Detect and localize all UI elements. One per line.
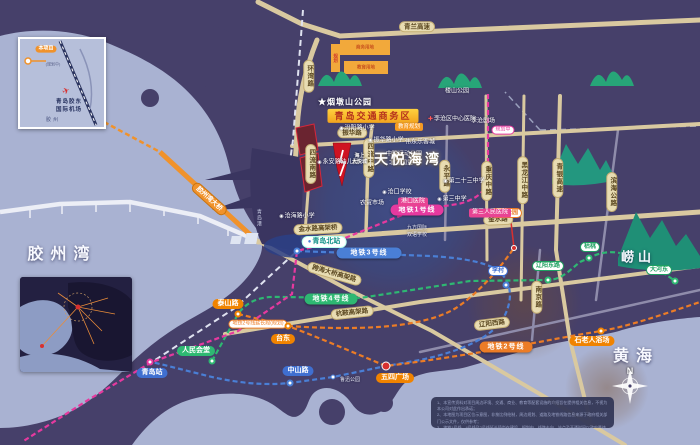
disclaimer-line: 3、地铁1号线、4号线及2号线延长段尚在建设、规划中，线路走向、站点及开通时间以… — [437, 425, 608, 428]
station-icon-taidong — [285, 323, 292, 330]
brand-mark: 海上 大悦城 — [352, 153, 367, 165]
disclaimer-line: 2、本地图为项目区位示意图，非按比例绘制，周边规划、道路及地铁线路信息来源于政府… — [437, 412, 608, 424]
station-icon-licun-park — [511, 245, 517, 251]
inset-airport-name-1: 青岛胶东 — [56, 99, 82, 105]
inset-planned-note: (规划中) — [46, 63, 61, 68]
qingdao-location-map: 胶州湾黄海崂山青兰高速环湾路四流南路四流中路振华路金水路高架桥金水路跨海大桥高架… — [0, 0, 700, 445]
station-icon-shilaoren — [598, 328, 605, 335]
project-name: 天悦海湾 — [374, 149, 442, 169]
station-icon-qingdao — [147, 359, 154, 366]
logo-divider — [370, 151, 371, 167]
inset-project-pill: 本项目 — [35, 46, 56, 53]
station-icon-taishan-road — [235, 311, 242, 318]
inset-airport-name-2: 国际机场 — [56, 107, 82, 113]
station-icon-zhongshan-road — [287, 380, 294, 387]
region-inset-graphics — [20, 277, 132, 372]
disclaimer-line: 1、本宣传资料对项目周边环境、交通、商业、教育等配套设施的介绍旨在提供相关信息，… — [437, 400, 608, 412]
project-logo: 海上 大悦城 天悦海湾 — [352, 147, 442, 171]
station-icon-luxun-park — [331, 375, 336, 380]
compass: N — [610, 366, 650, 422]
station-icon-qingdao-north — [294, 248, 301, 255]
airport-inset-map: 本项目(规划中)✈青岛胶东国际机场胶州 — [18, 37, 106, 129]
inset-jiaozhou-label: 胶州 — [46, 118, 60, 124]
station-icon-kutao — [586, 255, 593, 262]
station-icon-dahedong — [672, 278, 679, 285]
brand-bottom-label: 大悦城 — [352, 159, 367, 165]
station-icon-licun — [503, 282, 510, 289]
airport-inset-graphics — [20, 39, 104, 127]
region-inset-map: 大悦城·天悦海湾流亭机场城阳区崂山区市北区市南区黄岛胶州湾 — [20, 277, 132, 372]
compass-rose-icon — [610, 366, 650, 406]
station-icon-liaoyang-east — [545, 277, 552, 284]
station-icon-renmin-huitang — [209, 358, 216, 365]
disclaimer-box: 1、本宣传资料对项目周边环境、交通、商业、教育等配套设施的介绍旨在提供相关信息，… — [431, 397, 614, 428]
station-icon-wusi-square — [382, 362, 391, 371]
